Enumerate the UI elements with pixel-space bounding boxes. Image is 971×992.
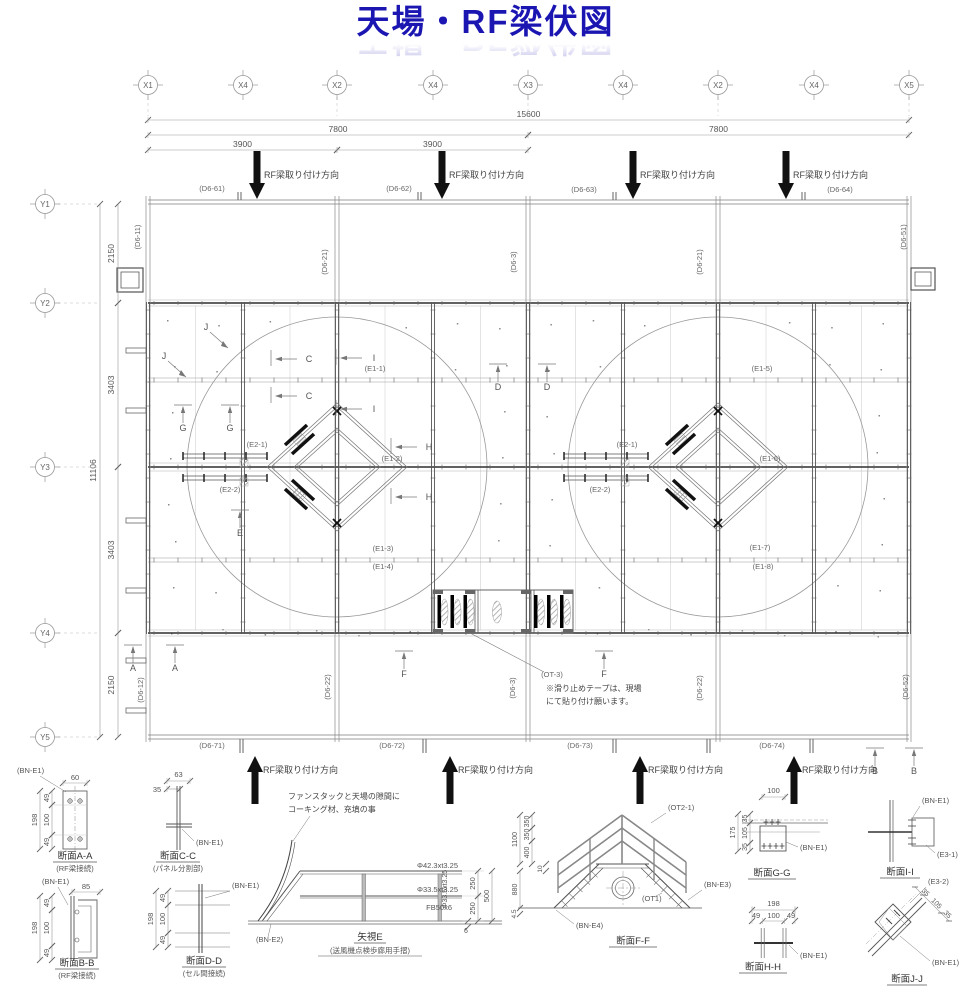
dim-label: 1100 <box>512 832 519 847</box>
dim-label: 49 <box>752 911 760 920</box>
slip-note: にて貼り付け願います。 <box>546 696 633 706</box>
callout-label: C <box>306 391 313 401</box>
anno: (BN-E1) <box>17 766 45 775</box>
beam-label: (D6-52) <box>901 674 910 700</box>
dim-label: 105 <box>742 827 749 839</box>
beam-label: (D6-11) <box>133 224 142 249</box>
slip-note: ※滑り止めテープは、現場 <box>546 683 642 693</box>
panel-dot <box>215 592 217 594</box>
grid-bubble-label: X2 <box>713 81 723 90</box>
rect <box>121 272 139 288</box>
anno: (BN-E4) <box>576 921 604 930</box>
panel-dot <box>599 587 601 589</box>
dim-label: 35 <box>742 815 749 823</box>
dim-label: 7800 <box>329 124 348 134</box>
beam-label: (D6-3) <box>508 677 517 699</box>
anno: Φ42.3xt3.25 <box>417 861 458 870</box>
section-sub: (RF梁接続) <box>56 863 94 873</box>
fan-pad <box>621 478 629 486</box>
walkway-cap <box>521 590 531 594</box>
callout-label: H <box>426 442 433 452</box>
dim-label: 100 <box>767 786 780 795</box>
beam-label: (D6-21) <box>320 249 329 275</box>
callout-head <box>340 356 347 360</box>
dim-label: 400 <box>524 847 531 859</box>
dim-label: 175 <box>730 827 737 839</box>
plan-canvas: 1560078007800390039002150340334032150111… <box>0 0 971 992</box>
beam-label: (E1-2) <box>382 454 403 463</box>
callout-head <box>602 652 606 659</box>
beam-label: (D6-61) <box>199 184 225 193</box>
beam-label: (D6-74) <box>759 741 785 750</box>
dim-label: 100 <box>42 814 51 827</box>
walkway-slot <box>564 599 571 625</box>
panel-dot <box>172 412 174 414</box>
anno: (OT1) <box>642 894 662 903</box>
bolt <box>886 918 892 924</box>
walkway-bar <box>547 595 551 628</box>
callout-head <box>912 749 916 756</box>
anno: Φ33.5xt3.25 <box>442 870 449 908</box>
leader <box>205 891 230 898</box>
rail-post <box>362 874 366 921</box>
dim-label: 49 <box>42 949 51 957</box>
callout-label: C <box>306 354 313 364</box>
panel-dot <box>551 499 553 501</box>
panel-dot <box>499 328 501 330</box>
callout-head <box>179 370 186 377</box>
install-arrow-down <box>249 151 265 199</box>
section-title: 断面I-I <box>886 866 913 878</box>
dim-label: 11106 <box>88 459 98 482</box>
callout-label: D <box>495 382 502 392</box>
leader <box>900 936 930 961</box>
dim-label: 2150 <box>106 244 116 263</box>
grid-bubble-label: Y3 <box>40 463 50 472</box>
panel-dot <box>218 325 220 327</box>
edge-tab <box>126 708 146 713</box>
section-sub: (RF梁接続) <box>58 970 96 980</box>
panel-dot <box>883 323 885 325</box>
grid-bubble-label: X3 <box>523 81 533 90</box>
panel-dot <box>550 324 552 326</box>
callout-head <box>873 749 877 756</box>
panel-dot <box>877 452 879 454</box>
callout-head <box>228 406 232 413</box>
panel-dot <box>831 327 833 329</box>
beam-label: (D6-71) <box>199 741 225 750</box>
caulk-note: ファンスタックと天場の隙間に <box>288 791 400 801</box>
anno: (BN-E1) <box>932 958 960 967</box>
install-arrow-up <box>632 756 648 804</box>
beam-label: (E1-8) <box>753 562 774 571</box>
beam-label: (OT-3) <box>541 670 563 679</box>
walkway-slot <box>441 599 448 625</box>
dim-label: 35 <box>920 888 931 899</box>
fanstack-curve <box>258 840 292 921</box>
install-arrow-up <box>786 756 802 804</box>
anno: (BN-E1) <box>196 838 224 847</box>
rect <box>912 818 934 846</box>
beam-label: (E1-4) <box>373 562 394 571</box>
beam-label: (E1-3) <box>373 544 394 553</box>
install-direction-label: RF梁取り付け方向 <box>263 764 338 775</box>
section-sub: (送風機点検歩廊用手摺) <box>330 945 410 955</box>
leader <box>913 806 920 817</box>
beam-label: (E1-5) <box>752 364 773 373</box>
install-direction-label: RF梁取り付け方向 <box>449 169 524 180</box>
anno: (OT2-1) <box>668 803 695 812</box>
callout-label: A <box>172 663 178 673</box>
dim-label: 100 <box>767 911 780 920</box>
panel-dot <box>553 453 555 455</box>
dim-label: 250 <box>468 877 477 890</box>
anno: (BN-E1) <box>800 843 828 852</box>
polyline <box>78 900 97 958</box>
dim-label: 3403 <box>106 540 116 559</box>
callout-head <box>173 646 177 653</box>
beam-label: (D6-21) <box>695 249 704 275</box>
fan-pad <box>240 459 248 467</box>
walkway-bar <box>560 595 564 628</box>
callout-label: G <box>179 423 186 433</box>
panel-dot <box>549 545 551 547</box>
panel-dot <box>880 590 882 592</box>
callout-head <box>275 357 282 361</box>
dim-label: 49 <box>42 838 51 846</box>
dim-label: 85 <box>82 882 90 891</box>
grid-bubble-label: X4 <box>618 81 628 90</box>
leader <box>789 945 798 954</box>
panel-dot <box>270 321 272 323</box>
panel-dot <box>600 366 602 368</box>
dim-label: 3900 <box>423 139 442 149</box>
panel-dot <box>690 634 692 636</box>
rail-post <box>438 874 442 921</box>
beam-label: (D6-3) <box>509 251 518 273</box>
walkway-slot <box>538 599 545 625</box>
beam-label: (E2-1) <box>617 440 638 449</box>
grid-bubble-label: X1 <box>143 81 153 90</box>
dim-label: 100 <box>42 922 51 935</box>
panel-dot <box>882 544 884 546</box>
edge-tab <box>126 408 146 413</box>
dim-label: 3900 <box>233 139 252 149</box>
panel-dot <box>173 587 175 589</box>
anno: (BN-E1) <box>232 881 260 890</box>
callout-label: E <box>237 528 243 538</box>
callout-label: I <box>373 404 376 414</box>
panel-dot <box>506 365 508 367</box>
dim-label: 198 <box>146 913 155 926</box>
dim-label: 350 <box>524 816 531 828</box>
walkway-slot <box>493 601 502 623</box>
leader <box>470 633 544 672</box>
drawing-title: 天場・RF梁伏図 <box>0 4 971 40</box>
fan-pad <box>240 478 248 486</box>
install-direction-label: RF梁取り付け方向 <box>264 169 339 180</box>
section-title: 断面H-H <box>745 961 781 973</box>
panel-dot <box>829 364 831 366</box>
dim-label: 198 <box>767 899 780 908</box>
callout-head <box>131 646 135 653</box>
callout-label: B <box>911 766 917 776</box>
callout-head <box>395 445 402 449</box>
callout-label: F <box>401 669 407 679</box>
panel-dot <box>265 634 267 636</box>
beam-label: (D6-73) <box>567 741 593 750</box>
panel-dot <box>168 504 170 506</box>
leader <box>556 910 574 924</box>
beam-label: (D6-63) <box>571 185 597 194</box>
section-title: 断面B-B <box>60 957 95 969</box>
section-title: 断面G-G <box>754 867 791 879</box>
panel-dot <box>789 322 791 324</box>
dim-label: 105 <box>929 897 942 910</box>
walkway-cap <box>563 590 573 594</box>
callout-head <box>395 495 402 499</box>
edge-bracket <box>911 268 935 290</box>
beam-label: (D6-22) <box>323 674 332 700</box>
callout-label: F <box>601 669 607 679</box>
callout-label: A <box>130 663 136 673</box>
panel-dot <box>502 457 504 459</box>
install-arrow-down <box>625 151 641 199</box>
section-title: 断面F-F <box>616 935 650 947</box>
section-title: 矢視E <box>357 931 382 943</box>
grid-bubble-label: X4 <box>809 81 819 90</box>
section-title: 断面A-A <box>58 850 94 862</box>
beam-label: (E2-2) <box>590 485 611 494</box>
dim-label: 350 <box>524 829 531 841</box>
leader <box>651 813 666 823</box>
drawing-title-block: 天場・RF梁伏図 天場・RF梁伏図 <box>0 4 971 57</box>
beam-label: (D6-62) <box>386 184 412 193</box>
install-arrow-down <box>434 151 450 199</box>
dim-label: 198 <box>30 814 39 827</box>
grid-bubble-label: X5 <box>904 81 914 90</box>
panel-dot <box>879 415 881 417</box>
callout-label: G <box>226 423 233 433</box>
beam-label: (E2-2) <box>220 485 241 494</box>
dim-label: 49 <box>42 899 51 907</box>
edge-tab <box>126 348 146 353</box>
leader <box>58 887 68 905</box>
walkway-cap <box>465 590 475 594</box>
beam-label: (E1-6) <box>760 454 781 463</box>
dim-label: 49 <box>158 936 167 944</box>
walkway-bar <box>464 595 468 628</box>
panel-dot <box>406 327 408 329</box>
dim-label: 10 <box>537 865 544 873</box>
walkway-bar <box>451 595 455 628</box>
walkway-slot <box>454 599 461 625</box>
grid-bubble-label: Y2 <box>40 299 50 308</box>
dim-label: 880 <box>512 884 519 896</box>
callout-head <box>402 652 406 659</box>
drawing-page: 天場・RF梁伏図 天場・RF梁伏図 1560078007800390039002… <box>0 0 971 992</box>
panel-dot <box>504 411 506 413</box>
callout-label: H <box>426 492 433 502</box>
dim-label: 198 <box>30 922 39 935</box>
panel-dot <box>170 458 172 460</box>
section-sub: (セル間接続) <box>183 968 226 978</box>
panel-dot <box>216 371 218 373</box>
install-direction-label: RF梁取り付け方向 <box>640 169 715 180</box>
grid-bubble-label: Y5 <box>40 733 50 742</box>
grid-bubble-label: Y4 <box>40 629 50 638</box>
anno: (BN-E1) <box>42 877 70 886</box>
dim-label: 7800 <box>709 124 728 134</box>
beam-label: (D6-72) <box>379 741 405 750</box>
beam-label: (D6-51) <box>899 224 908 250</box>
install-direction-label: RF梁取り付け方向 <box>802 764 877 775</box>
panel-dot <box>884 498 886 500</box>
beam-label: (D6-12) <box>136 677 145 703</box>
section-title: 断面C-C <box>160 850 196 862</box>
leader <box>688 890 702 900</box>
install-direction-label: RF梁取り付け方向 <box>648 764 723 775</box>
bolt <box>75 938 79 942</box>
callout-head <box>545 365 549 372</box>
caulk-note: コーキング材、充填の事 <box>288 804 376 814</box>
anno: (BN-E3) <box>704 880 732 889</box>
install-arrow-up <box>442 756 458 804</box>
beam-label: (E2-1) <box>247 440 268 449</box>
anno: (BN-E1) <box>800 951 828 960</box>
dim-label: 60 <box>71 773 79 782</box>
dim-label: 35 <box>153 785 161 794</box>
dim-label: 2150 <box>106 675 116 694</box>
grid-bubble-label: X4 <box>238 81 248 90</box>
section-sub: (パネル分割部) <box>153 863 203 873</box>
panel-dot <box>593 320 595 322</box>
dim-label: 35 <box>742 843 749 851</box>
panel-dot <box>881 369 883 371</box>
grid-bubble-label: X4 <box>428 81 438 90</box>
leader <box>182 829 194 841</box>
panel-dot <box>837 585 839 587</box>
dim-label: 35 <box>942 910 953 921</box>
bolt <box>75 910 79 914</box>
dim-label: 4.5 <box>511 909 518 918</box>
beam-label: (E1-7) <box>750 543 771 552</box>
edge-tab <box>126 588 146 593</box>
grid-bubble-label: Y1 <box>40 200 50 209</box>
callout-head <box>221 341 228 348</box>
walkway-slot <box>467 599 474 625</box>
anno: (E3-2) <box>928 877 949 886</box>
dim-label: 100 <box>158 913 167 926</box>
walkway-cap <box>563 629 573 633</box>
drawing-title-reflection: 天場・RF梁伏図 <box>0 40 971 57</box>
walkway-cap <box>465 629 475 633</box>
walkway-cap <box>433 629 443 633</box>
beam-label: (E1-1) <box>365 364 386 373</box>
install-direction-label: RF梁取り付け方向 <box>458 764 533 775</box>
dim-label: 15600 <box>517 109 541 119</box>
line <box>263 871 300 920</box>
rect <box>915 272 931 286</box>
dim-label: 63 <box>174 770 182 779</box>
panel-dot <box>167 320 169 322</box>
callout-label: I <box>373 353 376 363</box>
walkway-cap <box>521 629 531 633</box>
panel-dot <box>644 325 646 327</box>
section-title: 断面J-J <box>891 973 923 985</box>
edge-tab <box>126 518 146 523</box>
polyline <box>78 906 91 952</box>
dim-label: 3403 <box>106 375 116 394</box>
beam-label: (D6-64) <box>827 185 853 194</box>
line <box>562 868 603 908</box>
walkway-bar <box>438 595 442 628</box>
panel-dot <box>457 323 459 325</box>
panel-dot <box>500 503 502 505</box>
walkway-bar <box>534 595 538 628</box>
panel-dot <box>175 541 177 543</box>
beam-label: (D6-22) <box>695 675 704 701</box>
callout-label: B <box>872 766 878 776</box>
callout-head <box>181 406 185 413</box>
panel-dot <box>455 369 457 371</box>
anno: (BN-E2) <box>256 935 284 944</box>
dim-label: 500 <box>482 890 491 903</box>
callout-head <box>275 394 282 398</box>
anno: (BN-E1) <box>922 796 950 805</box>
callout-label: D <box>544 382 551 392</box>
dim-label: 6 <box>464 928 468 935</box>
callout-label: J <box>162 351 167 361</box>
callout-label: J <box>204 322 209 332</box>
anno: Φ33.5xt3.25 <box>417 885 458 894</box>
grid-bubble-label: X2 <box>332 81 342 90</box>
install-arrow-down <box>778 151 794 199</box>
callout-head <box>496 365 500 372</box>
install-direction-label: RF梁取り付け方向 <box>793 169 868 180</box>
anno: (E3-1) <box>937 850 958 859</box>
walkway-cap <box>433 590 443 594</box>
walkway-slot <box>551 599 558 625</box>
section-title: 断面D-D <box>186 955 222 967</box>
panel-dot <box>498 540 500 542</box>
leader <box>786 842 798 847</box>
dim-label: 49 <box>42 794 51 802</box>
dim-label: 250 <box>468 902 477 915</box>
dim-label: 49 <box>158 894 167 902</box>
dim-label: 49 <box>787 911 795 920</box>
install-arrow-up <box>247 756 263 804</box>
panel-dot <box>546 416 548 418</box>
leader <box>293 816 310 841</box>
fan-pad <box>621 459 629 467</box>
